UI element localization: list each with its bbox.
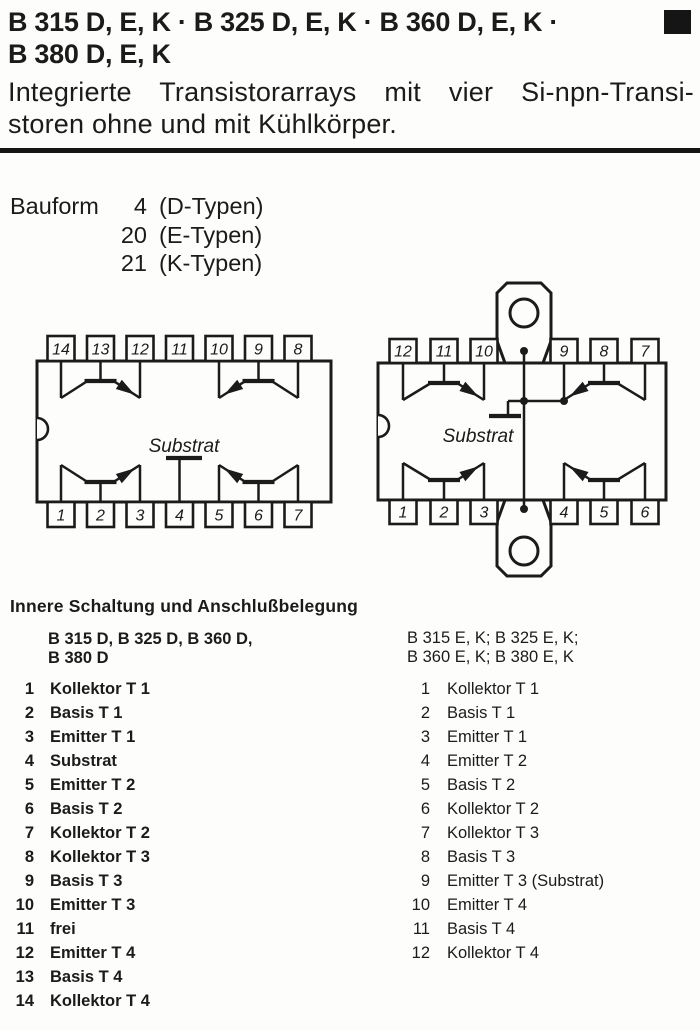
pin-number: 5 <box>404 776 430 795</box>
dip12-bottom-pin-number: 6 <box>641 505 650 522</box>
pin-function-label: Emitter T 3 (Substrat) <box>447 872 604 891</box>
pin-function-label: Kollektor T 3 <box>447 824 539 843</box>
pin-number: 14 <box>8 992 34 1011</box>
pin-row: 4Substrat <box>8 752 150 776</box>
bauform-type: (K-Typen) <box>159 249 262 278</box>
pin-function-label: Kollektor T 4 <box>447 944 539 963</box>
pin-function-label: Basis T 4 <box>447 920 515 939</box>
bauform-number: 20 <box>112 221 147 250</box>
dip14-body <box>37 361 331 502</box>
dip14-top-pin-number: 14 <box>52 342 70 359</box>
corner-marker-square <box>664 10 691 34</box>
bauform-rows: 4 (D-Typen) 20 (E-Typen) 21 (K-Typen) <box>112 192 263 278</box>
pinout-left-header-line2: B 380 D <box>48 649 253 668</box>
datasheet-page: { "page": { "title_line1": "B 315 D, E, … <box>0 0 700 1030</box>
pinout-right-header: B 315 E, K; B 325 E, K; B 360 E, K; B 38… <box>407 629 579 667</box>
dip12-bottom-pin-number: 3 <box>480 505 489 522</box>
bauform-row: 21 (K-Typen) <box>112 249 263 278</box>
pin-function-label: Basis T 1 <box>50 704 122 723</box>
pin-number: 10 <box>8 896 34 915</box>
pin-function-label: Kollektor T 3 <box>50 848 150 867</box>
pin-row: 11frei <box>8 920 150 944</box>
pin-function-label: Basis T 2 <box>50 800 122 819</box>
dip12-body <box>378 363 666 500</box>
bauform-number: 21 <box>112 249 147 278</box>
emitter-arrow <box>224 468 243 483</box>
dip12-top-pin-number: 11 <box>436 344 453 361</box>
pin-row: 9Emitter T 3 (Substrat) <box>404 872 604 896</box>
dip14-notch <box>37 418 48 440</box>
pin-row: 12Kollektor T 4 <box>404 944 604 968</box>
pin-function-label: Emitter T 2 <box>447 752 527 771</box>
dip14-bottom-pin-number: 6 <box>254 508 263 525</box>
pin-function-label: Emitter T 1 <box>447 728 527 747</box>
pin-function-label: Basis T 4 <box>50 968 122 987</box>
pin-row: 14Kollektor T 4 <box>8 992 150 1016</box>
pin-row: 7Kollektor T 2 <box>8 824 150 848</box>
bauform-type: (E-Typen) <box>159 221 262 250</box>
pinout-left-header: B 315 D, B 325 D, B 360 D, B 380 D <box>48 630 253 668</box>
emitter-arrow <box>224 380 243 395</box>
pin-number: 2 <box>8 704 34 723</box>
pin-number: 8 <box>8 848 34 867</box>
pin-number: 6 <box>404 800 430 819</box>
pin-row: 10Emitter T 3 <box>8 896 150 920</box>
pinout-list-left: 1Kollektor T 12Basis T 13Emitter T 14Sub… <box>8 680 150 1016</box>
dip12-top-pin-number: 12 <box>394 344 412 361</box>
bauform-label: Bauform <box>10 192 112 278</box>
pin-row: 8Basis T 3 <box>404 848 604 872</box>
pin-row: 1Kollektor T 1 <box>404 680 604 704</box>
pin-row: 3Emitter T 1 <box>404 728 604 752</box>
bauform-row: 4 (D-Typen) <box>112 192 263 221</box>
emitter-arrow <box>459 382 478 397</box>
dip14-top-pin-number: 11 <box>171 342 188 359</box>
pinout-left-header-line1: B 315 D, B 325 D, B 360 D, <box>48 630 253 649</box>
pin-function-label: Kollektor T 1 <box>50 680 150 699</box>
circuit-trace <box>617 463 645 480</box>
pin-function-label: Emitter T 2 <box>50 776 135 795</box>
pin-number: 10 <box>404 896 430 915</box>
pin-row: 6Basis T 2 <box>8 800 150 824</box>
circuit-trace <box>403 463 431 480</box>
dip14-substrate-label: Substrat <box>149 436 220 457</box>
circuit-trace <box>61 465 88 482</box>
circuit-trace <box>403 383 431 400</box>
dip12-bottom-pin-number: 2 <box>439 505 449 522</box>
dip12-substrate-label: Substrat <box>443 426 514 447</box>
pin-row: 6Kollektor T 2 <box>404 800 604 824</box>
pin-function-label: Kollektor T 2 <box>50 824 150 843</box>
pin-row: 11Basis T 4 <box>404 920 604 944</box>
pin-function-label: Basis T 3 <box>447 848 515 867</box>
pin-row: 2Basis T 1 <box>404 704 604 728</box>
circuit-trace <box>272 465 299 482</box>
pin-function-label: Basis T 1 <box>447 704 515 723</box>
dip14-top-pin-number: 9 <box>254 342 263 359</box>
pin-number: 11 <box>8 920 34 939</box>
pin-number: 12 <box>8 944 34 963</box>
bauform-block: Bauform 4 (D-Typen) 20 (E-Typen) 21 (K-T… <box>10 192 263 278</box>
dip14-top-pin-number: 12 <box>131 342 149 359</box>
junction-dot <box>520 505 528 513</box>
pin-number: 8 <box>404 848 430 867</box>
dip12-top-pin-number: 9 <box>560 344 569 361</box>
pin-number: 11 <box>404 920 430 939</box>
junction-dot <box>560 397 568 405</box>
bauform-number: 4 <box>112 192 147 221</box>
pin-function-label: Emitter T 1 <box>50 728 135 747</box>
emitter-arrow <box>459 466 478 481</box>
page-title-line2: B 380 D, E, K <box>8 39 171 69</box>
emitter-arrow <box>569 382 588 397</box>
pin-function-label: Emitter T 4 <box>50 944 135 963</box>
pinout-right-header-line1: B 315 E, K; B 325 E, K; <box>407 629 579 648</box>
pin-function-label: frei <box>50 920 76 939</box>
junction-dot <box>520 347 528 355</box>
section-heading: Innere Schaltung und Anschlußbelegung <box>10 596 358 617</box>
dip12-top-pin-number: 10 <box>475 344 493 361</box>
pin-row: 1Kollektor T 1 <box>8 680 150 704</box>
pin-row: 5Basis T 2 <box>404 776 604 800</box>
dip14-bottom-pin-number: 1 <box>57 508 66 525</box>
pin-number: 7 <box>404 824 430 843</box>
ic-package-diagrams: 1413121110981234567Substrat1211109871234… <box>0 278 700 590</box>
pin-row: 3Emitter T 1 <box>8 728 150 752</box>
pin-number: 1 <box>404 680 430 699</box>
pin-function-label: Kollektor T 4 <box>50 992 150 1011</box>
pin-number: 9 <box>404 872 430 891</box>
pin-row: 8Kollektor T 3 <box>8 848 150 872</box>
dip14-top-pin-number: 8 <box>294 342 303 359</box>
dip14-bottom-pin-number: 3 <box>136 508 145 525</box>
pin-function-label: Basis T 3 <box>50 872 122 891</box>
pin-number: 9 <box>8 872 34 891</box>
dip12-bottom-pin-number: 5 <box>600 505 609 522</box>
pin-number: 4 <box>404 752 430 771</box>
subtitle-line1: Integrierte Transistorarrays mit vier Si… <box>8 77 694 108</box>
pin-number: 12 <box>404 944 430 963</box>
pin-function-label: Kollektor T 1 <box>447 680 539 699</box>
pin-function-label: Substrat <box>50 752 117 771</box>
pin-function-label: Emitter T 3 <box>50 896 135 915</box>
circuit-trace <box>617 383 645 400</box>
pin-number: 4 <box>8 752 34 771</box>
pin-row: 4Emitter T 2 <box>404 752 604 776</box>
dip12-notch <box>378 415 389 437</box>
dip12-top-pin-number: 8 <box>600 344 609 361</box>
dip14-bottom-pin-number: 4 <box>175 508 184 525</box>
pin-function-label: Basis T 2 <box>447 776 515 795</box>
dip14-top-pin-number: 13 <box>92 342 110 359</box>
bauform-row: 20 (E-Typen) <box>112 221 263 250</box>
dip14-bottom-pin-number: 5 <box>215 508 224 525</box>
emitter-arrow <box>116 468 135 483</box>
pin-function-label: Emitter T 4 <box>447 896 527 915</box>
dip14-bottom-pin-number: 2 <box>95 508 105 525</box>
pin-number: 1 <box>8 680 34 699</box>
emitter-arrow <box>116 380 135 395</box>
pin-row: 10Emitter T 4 <box>404 896 604 920</box>
horizontal-rule <box>0 148 700 153</box>
pin-row: 5Emitter T 2 <box>8 776 150 800</box>
dip14-bottom-pin-number: 7 <box>294 508 304 525</box>
pin-row: 7Kollektor T 3 <box>404 824 604 848</box>
dip12-bottom-pin-number: 4 <box>560 505 569 522</box>
pin-function-label: Kollektor T 2 <box>447 800 539 819</box>
circuit-trace <box>61 381 88 398</box>
pin-row: 2Basis T 1 <box>8 704 150 728</box>
pin-number: 2 <box>404 704 430 723</box>
pinout-right-header-line2: B 360 E, K; B 380 E, K <box>407 648 579 667</box>
pin-number: 3 <box>8 728 34 747</box>
pin-number: 13 <box>8 968 34 987</box>
pin-number: 6 <box>8 800 34 819</box>
dip12-bottom-pin-number: 1 <box>399 505 408 522</box>
pin-row: 12Emitter T 4 <box>8 944 150 968</box>
circuit-trace <box>272 381 299 398</box>
bauform-type: (D-Typen) <box>159 192 263 221</box>
junction-dot <box>520 397 528 405</box>
dip12-top-pin-number: 7 <box>641 344 651 361</box>
emitter-arrow <box>569 466 588 481</box>
subtitle-line2: storen ohne und mit Kühlkörper. <box>8 109 397 140</box>
pin-number: 5 <box>8 776 34 795</box>
pin-number: 3 <box>404 728 430 747</box>
page-title-line1: B 315 D, E, K · B 325 D, E, K · B 360 D,… <box>8 7 558 37</box>
pin-number: 7 <box>8 824 34 843</box>
dip14-top-pin-number: 10 <box>210 342 228 359</box>
pin-row: 9Basis T 3 <box>8 872 150 896</box>
pinout-list-right: 1Kollektor T 12Basis T 13Emitter T 14Emi… <box>404 680 604 968</box>
pin-row: 13Basis T 4 <box>8 968 150 992</box>
